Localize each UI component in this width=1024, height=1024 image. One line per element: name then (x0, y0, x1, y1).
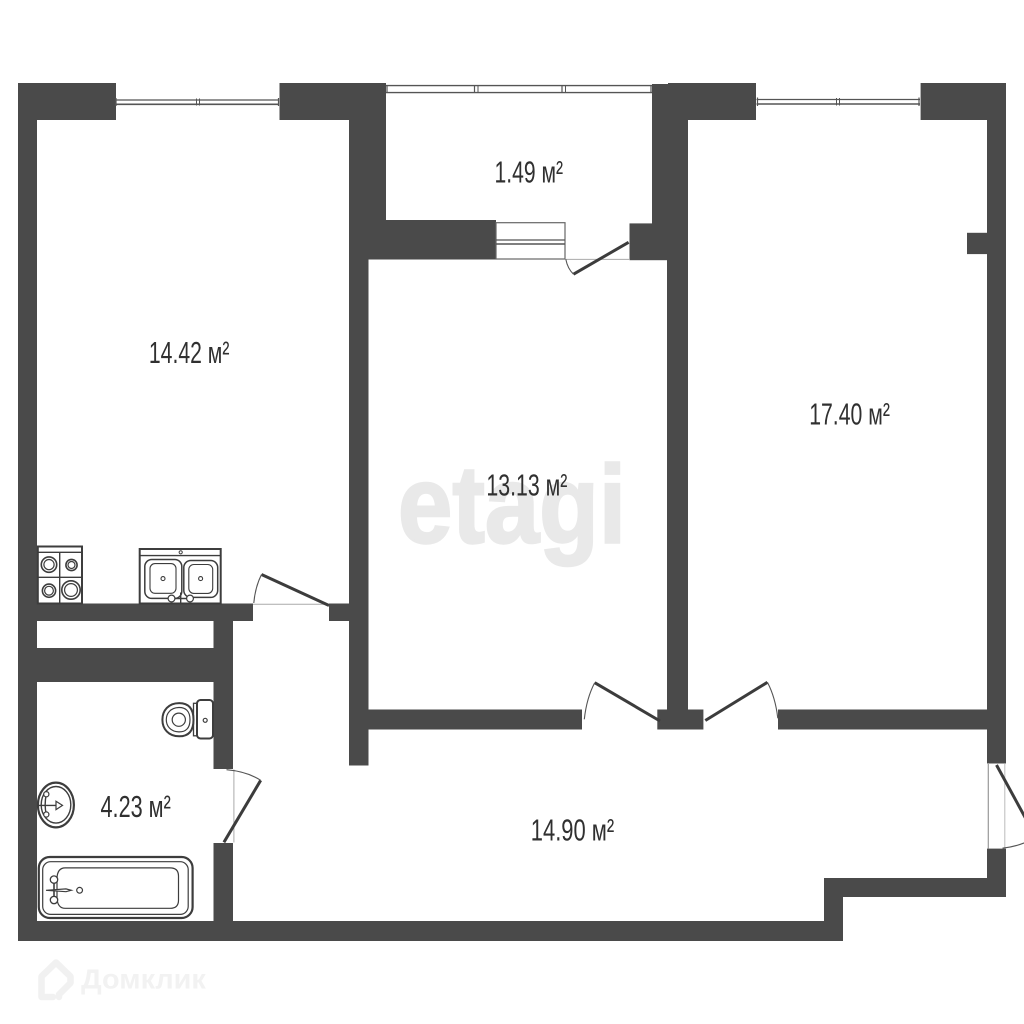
svg-text:14.42 м²: 14.42 м² (149, 335, 230, 370)
svg-text:Домклик: Домклик (81, 964, 207, 995)
svg-text:13.13 м²: 13.13 м² (486, 468, 567, 503)
svg-text:4.23 м²: 4.23 м² (101, 789, 171, 824)
svg-text:etagi: etagi (398, 444, 626, 567)
svg-text:17.40 м²: 17.40 м² (809, 396, 890, 431)
svg-text:1.49 м²: 1.49 м² (495, 154, 564, 189)
svg-text:14.90 м²: 14.90 м² (531, 813, 614, 848)
